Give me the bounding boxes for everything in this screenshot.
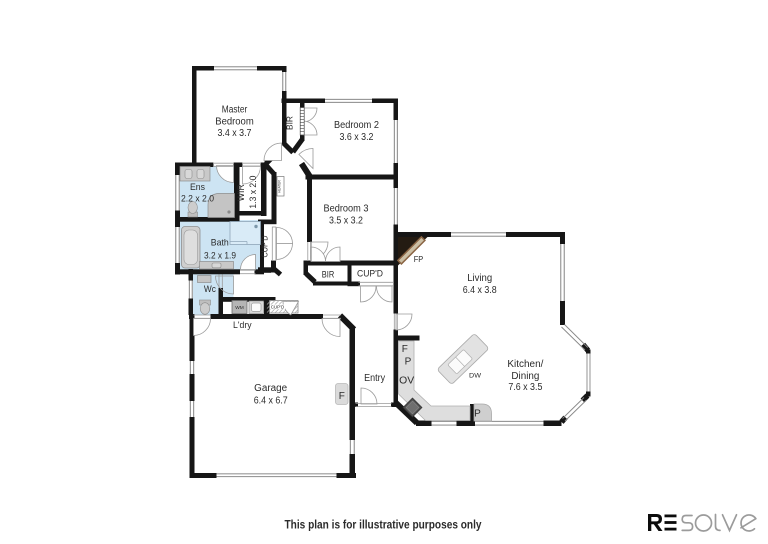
svg-text:3.2 x 1.9: 3.2 x 1.9 [204,250,236,261]
svg-text:Entry: Entry [364,372,386,384]
svg-text:3.6 x 3.2: 3.6 x 3.2 [340,132,374,143]
svg-text:Bath: Bath [211,238,229,249]
svg-text:HEATER: HEATER [278,179,282,192]
svg-text:CUP'D: CUP'D [261,235,270,257]
svg-text:BIR: BIR [322,270,335,280]
svg-text:F: F [339,391,345,402]
svg-text:WM: WM [235,305,244,311]
svg-text:Bedroom 2: Bedroom 2 [334,120,379,131]
svg-text:Ens: Ens [190,182,205,192]
svg-text:FP: FP [414,255,424,264]
svg-text:1.3 x 2.0: 1.3 x 2.0 [248,176,259,209]
svg-text:Garage: Garage [254,383,288,394]
svg-text:This plan is for illustrative: This plan is for illustrative purposes o… [285,518,482,532]
svg-text:DW: DW [469,374,481,380]
svg-text:OV: OV [399,376,414,387]
svg-text:CUP'D: CUP'D [357,269,383,279]
svg-text:7.6 x 3.5: 7.6 x 3.5 [508,382,542,393]
svg-text:3.4 x 3.7: 3.4 x 3.7 [218,128,252,139]
svg-text:F: F [402,344,408,355]
svg-text:6.4 x 3.8: 6.4 x 3.8 [463,285,497,296]
svg-text:CUP'D: CUP'D [271,305,285,310]
svg-text:2.2 x 2.0: 2.2 x 2.0 [181,193,214,203]
svg-text:Kitchen/: Kitchen/ [507,359,543,370]
svg-text:P: P [405,356,412,367]
svg-text:Master: Master [222,104,248,115]
svg-text:3.5 x 3.2: 3.5 x 3.2 [329,216,363,227]
svg-text:Wc: Wc [204,284,216,295]
svg-text:L'dry: L'dry [233,320,252,331]
svg-text:6.4 x 6.7: 6.4 x 6.7 [254,396,288,407]
svg-text:Bedroom 3: Bedroom 3 [324,204,370,215]
svg-text:P: P [474,409,481,420]
svg-text:Living: Living [467,273,492,284]
svg-text:BIR: BIR [285,116,295,130]
svg-text:Bedroom: Bedroom [215,117,254,128]
svg-text:Dining: Dining [511,371,539,382]
svg-text:WIR: WIR [236,184,247,201]
